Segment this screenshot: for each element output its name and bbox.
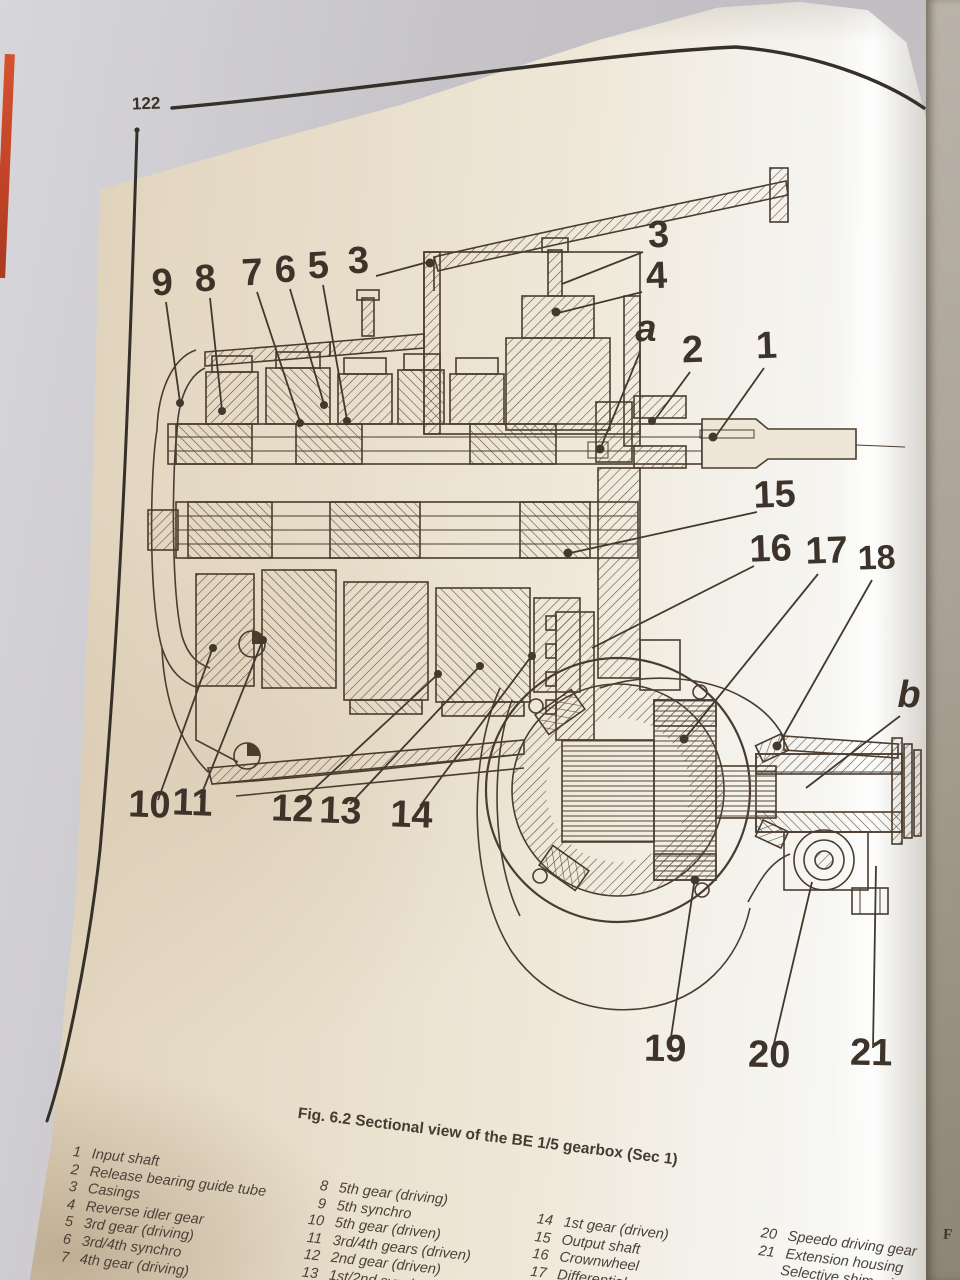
callout-7: 7 bbox=[241, 251, 264, 294]
callout-11: 11 bbox=[172, 781, 214, 824]
callout-19: 19 bbox=[644, 1028, 687, 1071]
callout-9: 9 bbox=[151, 261, 174, 304]
callout-1: 1 bbox=[755, 325, 778, 368]
callout-6: 6 bbox=[274, 248, 297, 291]
callout-2: 2 bbox=[681, 329, 704, 372]
callout-10: 10 bbox=[128, 783, 172, 826]
callout-14: 14 bbox=[390, 793, 434, 836]
callout-17: 17 bbox=[805, 529, 849, 572]
legend-column-1: 1Input shaft 2Release bearing guide tube… bbox=[42, 1142, 269, 1280]
callout-13: 13 bbox=[319, 789, 363, 832]
page-content: 122 bbox=[0, 0, 960, 1280]
page-number: 122 bbox=[132, 94, 161, 115]
callout-20: 20 bbox=[748, 1034, 791, 1077]
callout-16: 16 bbox=[749, 527, 793, 570]
callout-15: 15 bbox=[753, 473, 797, 516]
callout-3-left: 3 bbox=[347, 239, 370, 282]
photographed-book-page: 122 bbox=[0, 0, 960, 1280]
callout-4: 4 bbox=[645, 255, 668, 298]
page-rules bbox=[47, 47, 924, 1121]
callout-a: a bbox=[635, 308, 656, 350]
callout-21: 21 bbox=[850, 1032, 893, 1075]
callout-12: 12 bbox=[271, 787, 315, 830]
callout-5: 5 bbox=[307, 244, 330, 287]
callout-3-right: 3 bbox=[647, 214, 670, 257]
callout-8: 8 bbox=[194, 257, 217, 300]
callout-18: 18 bbox=[857, 538, 896, 577]
gearbox-sectional-drawing: 9 8 7 6 5 3 3 4 a 2 1 15 16 17 18 b 10 1… bbox=[0, 0, 960, 1280]
facing-page-text-fragment: F bbox=[942, 1227, 952, 1245]
callout-b: b bbox=[897, 674, 920, 716]
book-fold-strip bbox=[926, 0, 960, 1280]
